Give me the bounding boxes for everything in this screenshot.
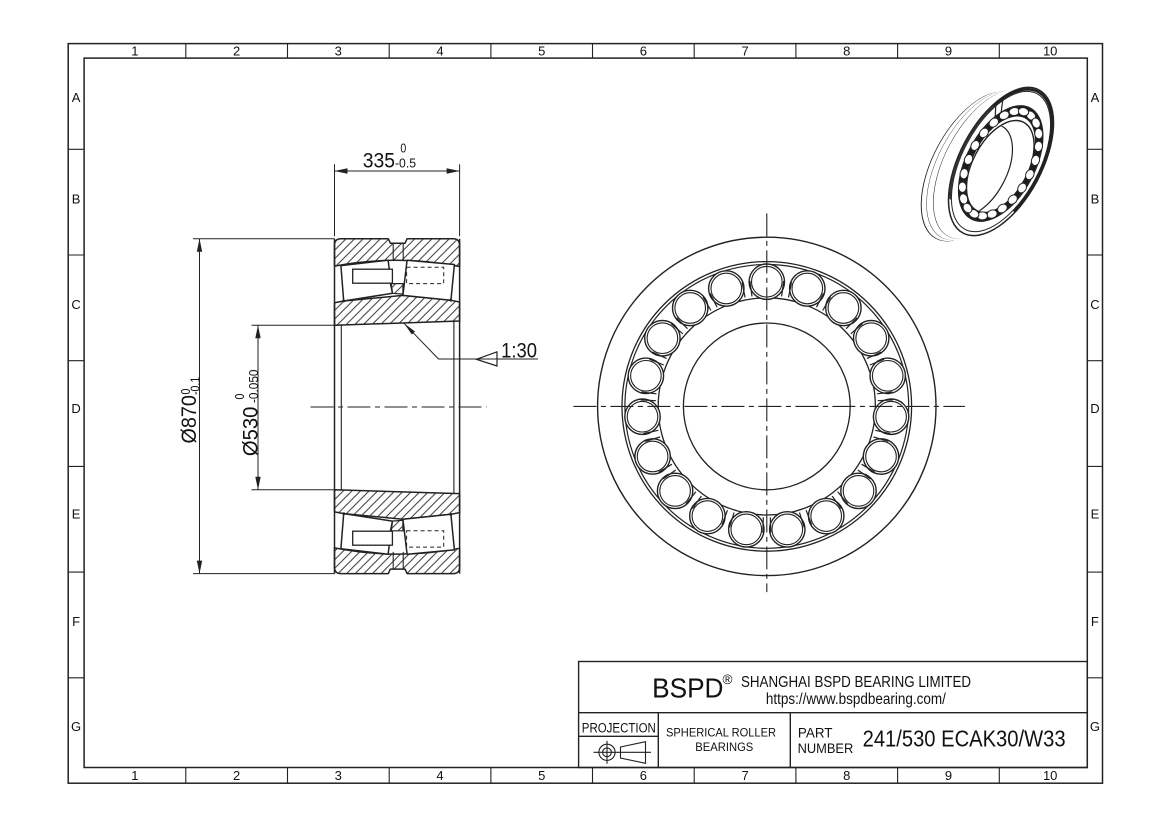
svg-text:6: 6	[640, 43, 647, 58]
svg-text:1: 1	[131, 768, 138, 783]
svg-text:F: F	[72, 614, 80, 629]
svg-text:1: 1	[131, 43, 138, 58]
svg-text:BEARINGS: BEARINGS	[695, 740, 753, 754]
svg-text:B: B	[1091, 192, 1100, 207]
svg-text:B: B	[72, 192, 81, 207]
svg-text:3: 3	[335, 43, 342, 58]
svg-text:241/530 ECAK30/W33: 241/530 ECAK30/W33	[863, 725, 1066, 751]
svg-text:1:30: 1:30	[501, 339, 537, 363]
svg-text:9: 9	[945, 43, 952, 58]
svg-text:8: 8	[843, 43, 850, 58]
svg-text:PROJECTION: PROJECTION	[582, 721, 656, 736]
svg-text:335: 335	[363, 149, 395, 172]
svg-text:7: 7	[741, 43, 748, 58]
svg-text:A: A	[1091, 90, 1100, 105]
svg-text:2: 2	[233, 43, 240, 58]
svg-text:G: G	[1090, 719, 1100, 734]
svg-text:SPHERICAL ROLLER: SPHERICAL ROLLER	[666, 726, 776, 740]
svg-text:4: 4	[436, 768, 443, 783]
svg-text:NUMBER: NUMBER	[798, 741, 854, 756]
svg-text:D: D	[1090, 401, 1099, 416]
svg-text:A: A	[72, 90, 81, 105]
svg-text:®: ®	[723, 672, 733, 687]
svg-text:9: 9	[945, 768, 952, 783]
svg-text:F: F	[1091, 614, 1099, 629]
svg-text:Ø530: Ø530	[239, 407, 262, 457]
svg-text:5: 5	[538, 768, 545, 783]
svg-text:10: 10	[1043, 43, 1057, 58]
svg-text:E: E	[1091, 507, 1100, 522]
svg-text:0: 0	[232, 394, 247, 400]
svg-text:C: C	[71, 297, 80, 312]
svg-text:BSPD: BSPD	[652, 672, 723, 703]
svg-text:E: E	[72, 507, 81, 522]
svg-text:6: 6	[640, 768, 647, 783]
svg-text:-0.5: -0.5	[395, 156, 416, 171]
svg-text:4: 4	[436, 43, 443, 58]
svg-text:Ø870: Ø870	[178, 395, 201, 443]
svg-text:SHANGHAI BSPD BEARING LIMITED: SHANGHAI BSPD BEARING LIMITED	[741, 674, 971, 691]
svg-text:8: 8	[843, 768, 850, 783]
svg-text:10: 10	[1043, 768, 1057, 783]
svg-text:PART: PART	[798, 726, 833, 741]
svg-text:7: 7	[741, 768, 748, 783]
svg-text:3: 3	[335, 768, 342, 783]
svg-text:2: 2	[233, 768, 240, 783]
svg-text:-0.1: -0.1	[188, 377, 203, 395]
svg-text:D: D	[71, 401, 80, 416]
svg-text:-0.050: -0.050	[246, 370, 261, 404]
svg-text:C: C	[1090, 297, 1099, 312]
svg-text:https://www.bspdbearing.com/: https://www.bspdbearing.com/	[766, 691, 947, 708]
svg-text:G: G	[71, 719, 81, 734]
svg-text:5: 5	[538, 43, 545, 58]
svg-text:0: 0	[400, 140, 406, 155]
